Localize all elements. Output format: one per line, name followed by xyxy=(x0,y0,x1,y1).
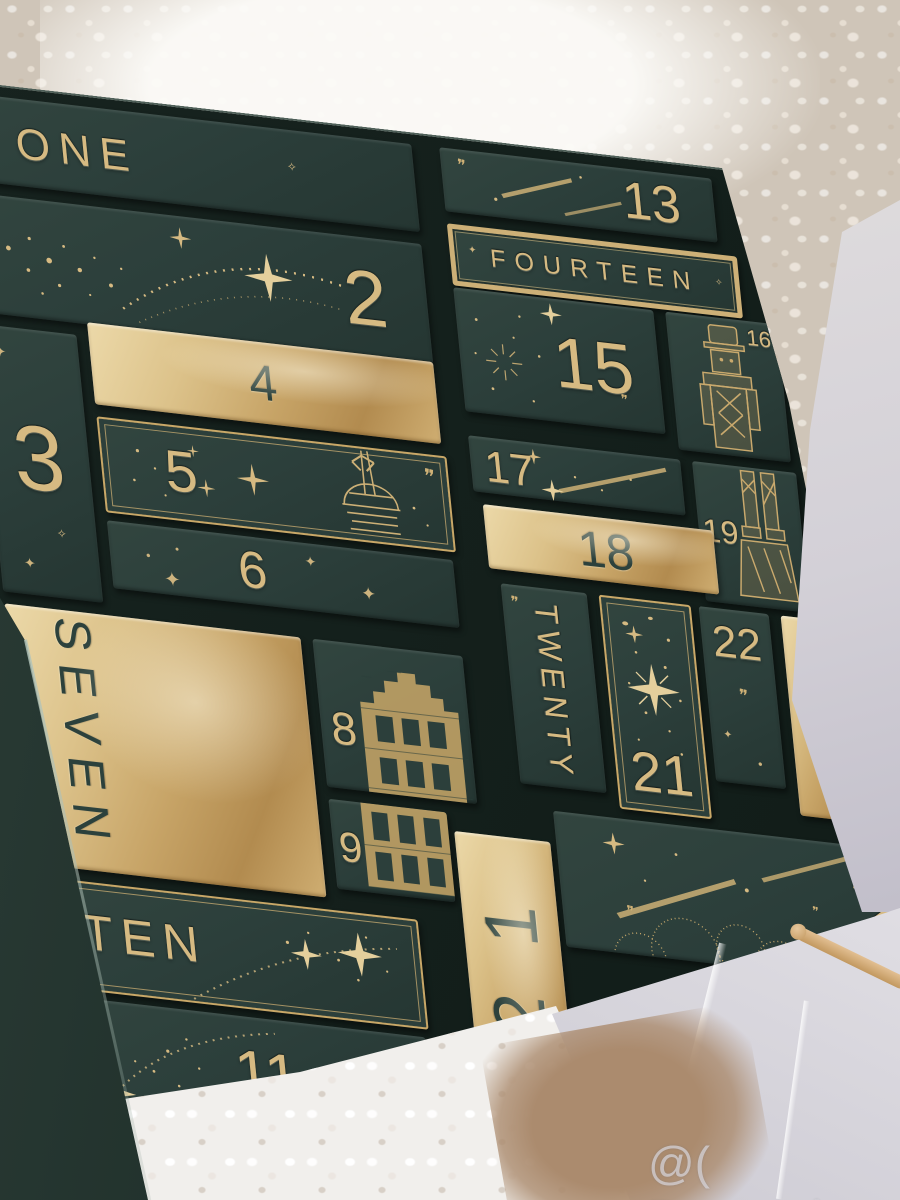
box-label-10: TEN xyxy=(80,907,209,971)
watermark: @( Bazos.sk xyxy=(648,1136,900,1200)
drawer-box-18: 18 xyxy=(483,504,719,594)
box-label-4: 4 xyxy=(247,356,280,409)
box-label-18: 18 xyxy=(576,523,637,579)
house-upper-illustration xyxy=(346,654,478,804)
box-label-22: 22 xyxy=(710,619,763,669)
star-icon: ● xyxy=(757,759,763,769)
box-label-1: ONE xyxy=(14,122,141,180)
drawer-box-20: ❞ TWENTY xyxy=(501,583,607,793)
star-icon: ✧ xyxy=(715,277,724,289)
box-label-20: TWENTY xyxy=(527,602,582,783)
brand-logo-icon: ❞ xyxy=(423,463,433,490)
house-lower-illustration xyxy=(356,802,455,902)
drawer-box-16: 16 xyxy=(665,312,791,463)
drawer-box-9: 9 xyxy=(328,799,455,903)
box-label-14: FOURTEEN xyxy=(489,246,701,295)
drawer-box-3: ✦ ✧ ✦ 3 xyxy=(0,323,103,603)
brand-logo-icon: ❞ xyxy=(620,391,626,408)
box-label-8: 8 xyxy=(329,704,359,753)
box-label-9: 9 xyxy=(337,825,365,870)
star-icon: ✦ xyxy=(23,554,36,572)
box-label-16: 16 xyxy=(745,327,772,352)
drawer-box-8: 8 xyxy=(312,639,477,804)
drawer-box-17: 17 xyxy=(468,435,686,515)
box-label-17: 17 xyxy=(483,445,536,495)
box-label-2: 2 xyxy=(340,256,391,339)
brand-logo-icon: ❞ xyxy=(738,685,746,706)
photo-advent-calendar: ONE ✧ 2 ✦ ✧ ✦ xyxy=(0,0,900,1200)
star-icon: ✦ xyxy=(304,553,317,571)
brand-logo-icon: ❞ xyxy=(812,904,817,919)
box-label-3: 3 xyxy=(9,410,69,508)
box-label-13: 13 xyxy=(620,174,683,233)
star-icon: ✦ xyxy=(0,341,7,363)
brand-logo-icon: ❞ xyxy=(626,902,632,920)
brand-logo-icon: ❞ xyxy=(510,592,517,611)
box-label-12-digit-1: 1 xyxy=(466,899,555,950)
star-icon: ✦ xyxy=(163,566,182,593)
drawer-box-15: 15 ❞ xyxy=(453,287,665,434)
box-label-21: 21 xyxy=(628,742,696,805)
box-label-5: 5 xyxy=(162,442,200,504)
drawer-box-21: 21 xyxy=(599,595,712,820)
star-icon: ✦ xyxy=(723,727,734,741)
star-icon: ● xyxy=(145,550,151,560)
star-icon: ✧ xyxy=(286,159,297,174)
star-icon: ✦ xyxy=(360,583,377,606)
box-label-6: 6 xyxy=(236,543,270,598)
drawer-box-22: 22 ❞ ✦ ● xyxy=(699,606,787,789)
star-icon: ● xyxy=(175,546,180,553)
star-icon: ✧ xyxy=(56,526,67,541)
star-icon: ✦ xyxy=(468,244,477,256)
